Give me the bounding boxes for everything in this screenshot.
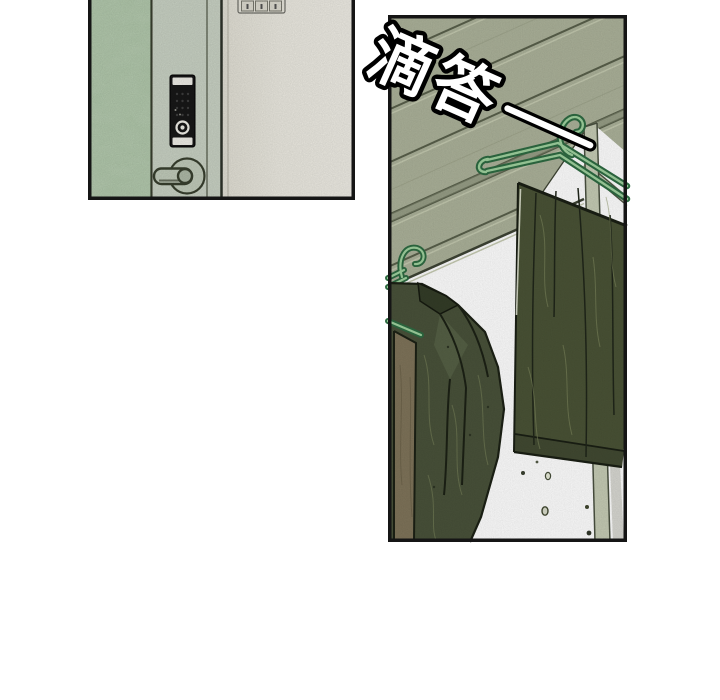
panel-door (88, 0, 355, 200)
paper-grain (90, 0, 353, 198)
comic-page: 滴答 (0, 0, 720, 700)
panel-laundry (388, 15, 627, 542)
paper-grain (388, 15, 627, 542)
